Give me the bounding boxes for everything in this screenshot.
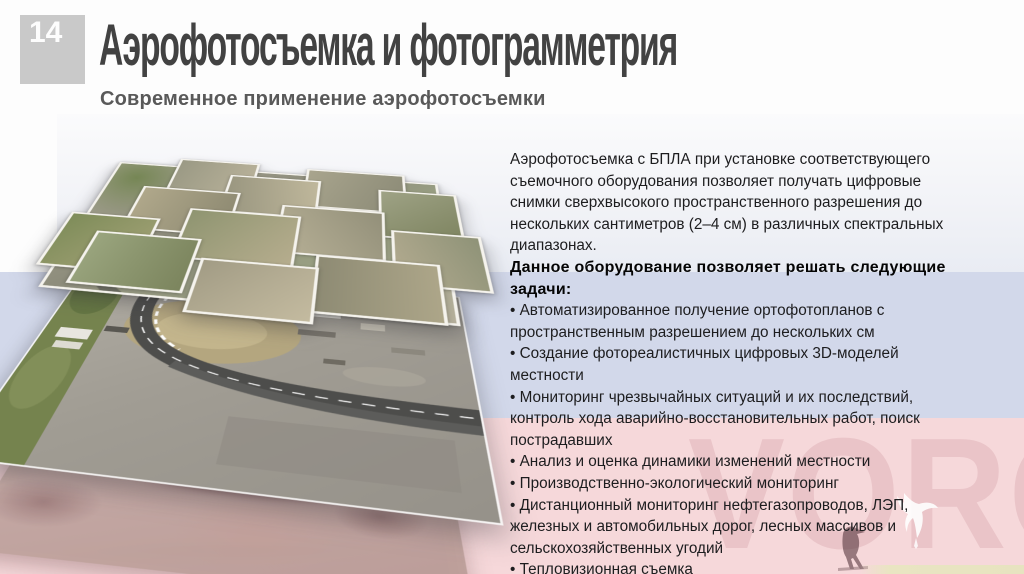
tasks-list: • Автоматизированное получение ортофотоп… [510,300,965,574]
task-bullet: • Создание фотореалистичных цифровых 3D-… [510,343,965,386]
task-bullet: • Тепловизионная съемка [510,559,965,574]
intro-paragraph: Аэрофотосъемка с БПЛА при установке соот… [510,149,965,257]
task-bullet: • Мониторинг чрезвычайных ситуаций и их … [510,387,965,452]
task-bullet: • Автоматизированное получение ортофотоп… [510,300,965,343]
body-text-block: Аэрофотосъемка с БПЛА при установке соот… [510,149,965,574]
tasks-heading: Данное оборудование позволяет решать сле… [510,257,965,300]
photo-tile [310,255,449,326]
photo-tile [182,258,319,325]
task-bullet: • Анализ и оценка динамики изменений мес… [510,451,965,473]
task-bullet: • Дистанционный мониторинг нефтегазопров… [510,495,965,560]
aerial-layers-figure [0,0,520,574]
slide-canvas: VORON 14 Аэрофотосъемка и фотограмметрия… [0,0,1024,574]
task-bullet: • Производственно-экологический монитори… [510,473,965,495]
